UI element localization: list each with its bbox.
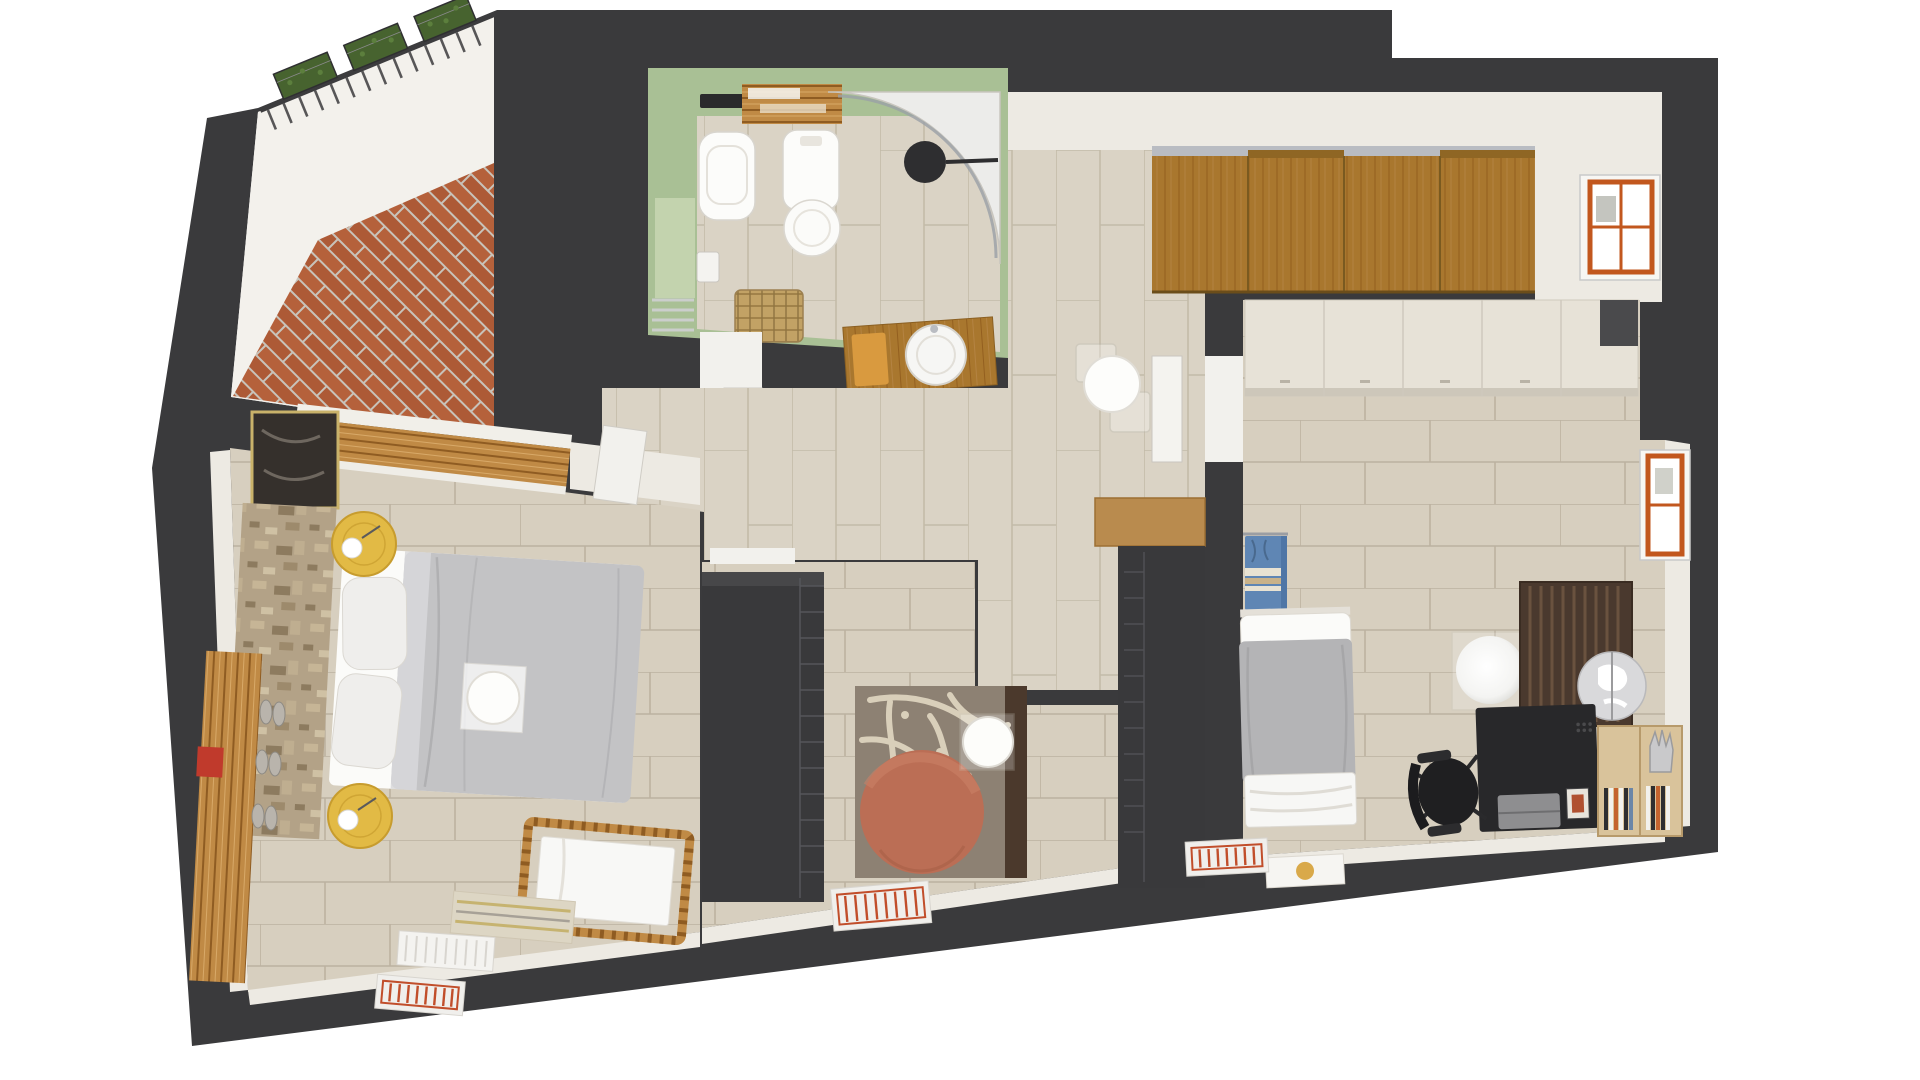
hand-sculpture [1650,730,1673,772]
pillow-top [342,577,407,670]
orange-floor-grille-right [1185,838,1269,876]
room-bedroom-right [1185,300,1690,888]
lamp [342,538,362,558]
bidet [783,130,840,256]
desk [1475,704,1599,832]
double-bed [328,547,644,803]
nightstand-bottom [328,784,392,848]
orange-floor-grille-middle [830,881,931,931]
nightstand-top [332,512,396,576]
wardrobe-dark-recess [1600,300,1638,346]
wood-console-cap [1095,498,1205,546]
built-in-wardrobe [1245,300,1638,396]
vanity-sink [843,317,997,395]
room-bedroom-left [189,404,700,1016]
glass-side-table [960,714,1014,770]
bedroom-door-opening [1205,356,1243,462]
artwork [252,412,338,508]
white-radiator-mat [397,931,495,972]
room-dressing [702,546,1205,944]
books-row-2 [1646,786,1670,830]
sliding-wardrobe [1152,150,1535,292]
wardrobe-unit-west [702,572,824,902]
floor-plan-svg [0,0,1920,1080]
floor-mat-gold-logo [1265,854,1344,888]
towel-shelves [742,84,842,124]
toilet-paper-holder [697,252,719,282]
hall-window [1580,175,1660,280]
single-bed [1238,607,1357,828]
wall-hung-toilet [699,132,755,220]
pillow-bottom [330,672,404,771]
corner-bookshelf [1598,726,1682,836]
dressing-entry-opening [710,548,795,564]
blue-wall-towels [1243,534,1288,610]
open-door-leaf [1152,356,1182,462]
orange-towel [851,332,889,386]
shower-head [904,141,946,183]
red-box [196,746,224,777]
room-terrace [231,0,504,436]
sphere-lamp-table [1452,632,1528,710]
lamp [338,810,358,830]
folded-blanket [1244,773,1356,828]
wardrobe-unit-east [1118,546,1205,888]
bathroom-door-opening [700,332,762,388]
floor-plan-image [0,0,1920,1080]
bathroom-wall-niche [655,198,695,298]
duvet-single [1239,639,1356,784]
sphere-lamp [1456,636,1524,704]
bedroom-window-east [1640,450,1690,560]
orange-floor-grille-left [375,974,466,1016]
breakfast-tray [460,663,526,733]
